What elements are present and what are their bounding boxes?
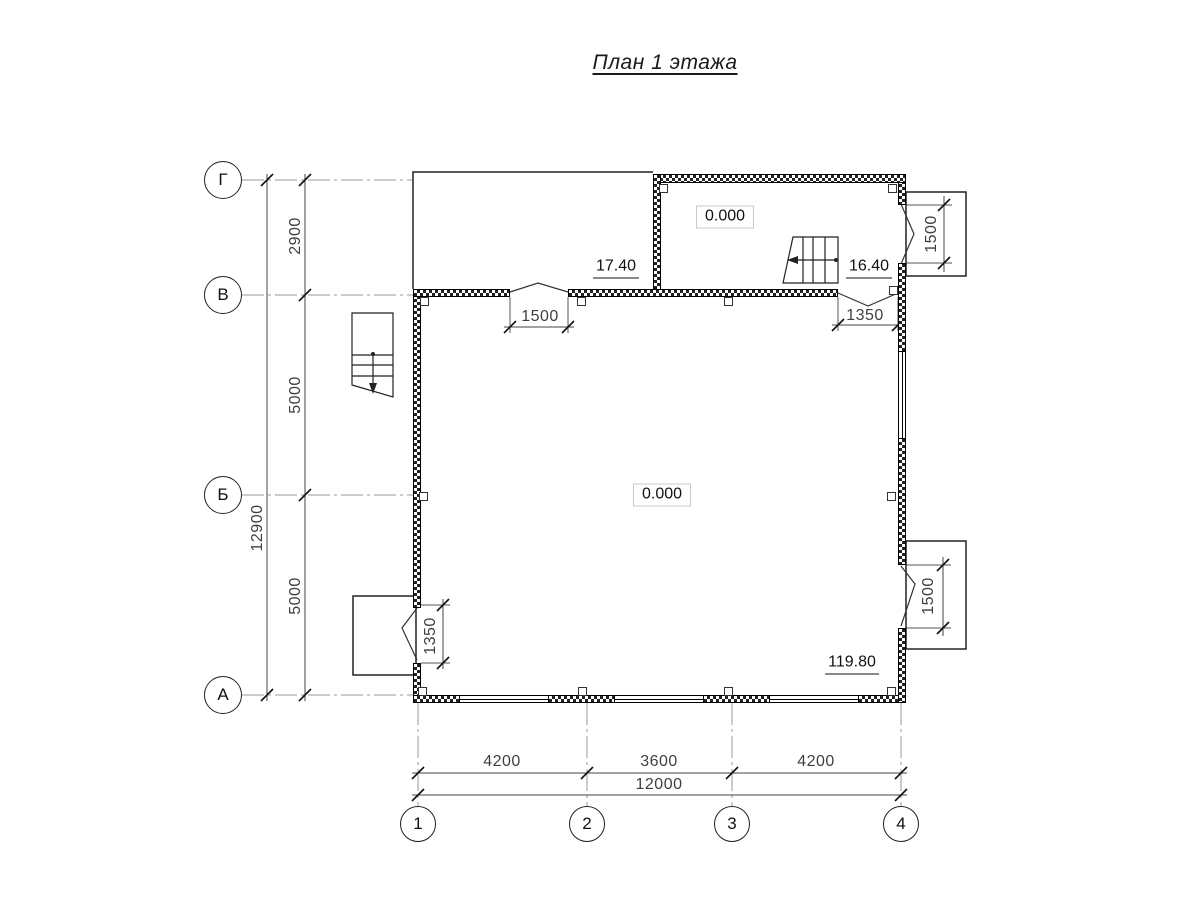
dim-left-2900: 2900	[287, 217, 305, 255]
level-mark-119-80: 119.80	[825, 654, 879, 675]
axis-label: А	[217, 685, 228, 705]
wall-middle-2	[568, 289, 838, 297]
dim-bottom-4200b: 4200	[797, 753, 835, 771]
axis-bubble-b: Б	[204, 476, 242, 514]
axis-label: 2	[582, 814, 591, 834]
wall-middle-1	[413, 289, 510, 297]
axis-label: 3	[727, 814, 736, 834]
level-mark-main-room: 0.000	[633, 484, 691, 507]
window-right-middle	[898, 352, 906, 438]
dim-left-5000a: 5000	[287, 376, 305, 414]
door-symbol-top	[510, 283, 568, 292]
jamb-square	[418, 687, 427, 696]
dim-bottom-total-12000: 12000	[636, 776, 683, 794]
jamb-square	[659, 184, 668, 193]
stairs-upper-right	[783, 237, 838, 283]
axis-bubble-g: Г	[204, 161, 242, 199]
axis-label: Б	[217, 485, 228, 505]
dim-door-top-1500: 1500	[521, 308, 559, 326]
dim-bottom-4200a: 4200	[483, 753, 521, 771]
wall-bottom-1	[413, 695, 460, 703]
axis-label: 4	[896, 814, 905, 834]
window-symbol-bottom-right	[901, 566, 915, 626]
floor-plan-canvas: План 1 этажа Г В Б А 1 2 3 4 2900 5000 5…	[0, 0, 1200, 900]
axis-label: Г	[218, 170, 227, 190]
linework-layer	[0, 0, 1200, 900]
axis-label: 1	[413, 814, 422, 834]
wall-right-3	[898, 438, 906, 565]
window-bottom-3	[770, 695, 858, 703]
page-title: План 1 этажа	[592, 51, 737, 75]
level-mark-17-40: 17.40	[593, 258, 639, 279]
window-bottom-1	[460, 695, 548, 703]
porch-outline	[353, 596, 416, 675]
dim-bottom-3600: 3600	[640, 753, 678, 771]
jamb-square	[577, 297, 586, 306]
axis-bubble-v: В	[204, 276, 242, 314]
wall-bottom-2	[548, 695, 615, 703]
wall-right-2	[898, 263, 906, 352]
wall-bottom-3	[703, 695, 770, 703]
wall-top	[653, 174, 906, 183]
jamb-square	[420, 297, 429, 306]
jamb-square	[724, 687, 733, 696]
axis-bubble-4: 4	[883, 806, 919, 842]
axis-bubble-2: 2	[569, 806, 605, 842]
dim-window-bottom-right-1500: 1500	[920, 577, 938, 615]
window-bottom-2	[615, 695, 703, 703]
jamb-square	[419, 492, 428, 501]
axis-label: В	[217, 285, 228, 305]
window-symbol-top-right	[901, 204, 914, 264]
axis-bubble-1: 1	[400, 806, 436, 842]
wall-right-4	[898, 628, 906, 703]
jamb-square	[889, 286, 898, 295]
jamb-square	[888, 184, 897, 193]
level-mark-upper-room: 0.000	[696, 206, 754, 229]
dim-door-left-1350: 1350	[422, 617, 440, 655]
door-symbol-left	[402, 608, 417, 660]
jamb-square	[578, 687, 587, 696]
axis-bubble-3: 3	[714, 806, 750, 842]
dim-left-total-12900: 12900	[249, 505, 267, 552]
jamb-square	[724, 297, 733, 306]
dim-left-5000b: 5000	[287, 577, 305, 615]
jamb-square	[887, 687, 896, 696]
stairs-left	[352, 313, 393, 397]
dim-door-right-1350: 1350	[846, 307, 884, 325]
dim-window-top-right-1500: 1500	[923, 215, 941, 253]
jamb-square	[887, 492, 896, 501]
level-mark-16-40: 16.40	[846, 258, 892, 279]
wall-left-upper	[413, 289, 421, 608]
axis-lines	[242, 180, 901, 806]
axis-bubble-a: А	[204, 676, 242, 714]
